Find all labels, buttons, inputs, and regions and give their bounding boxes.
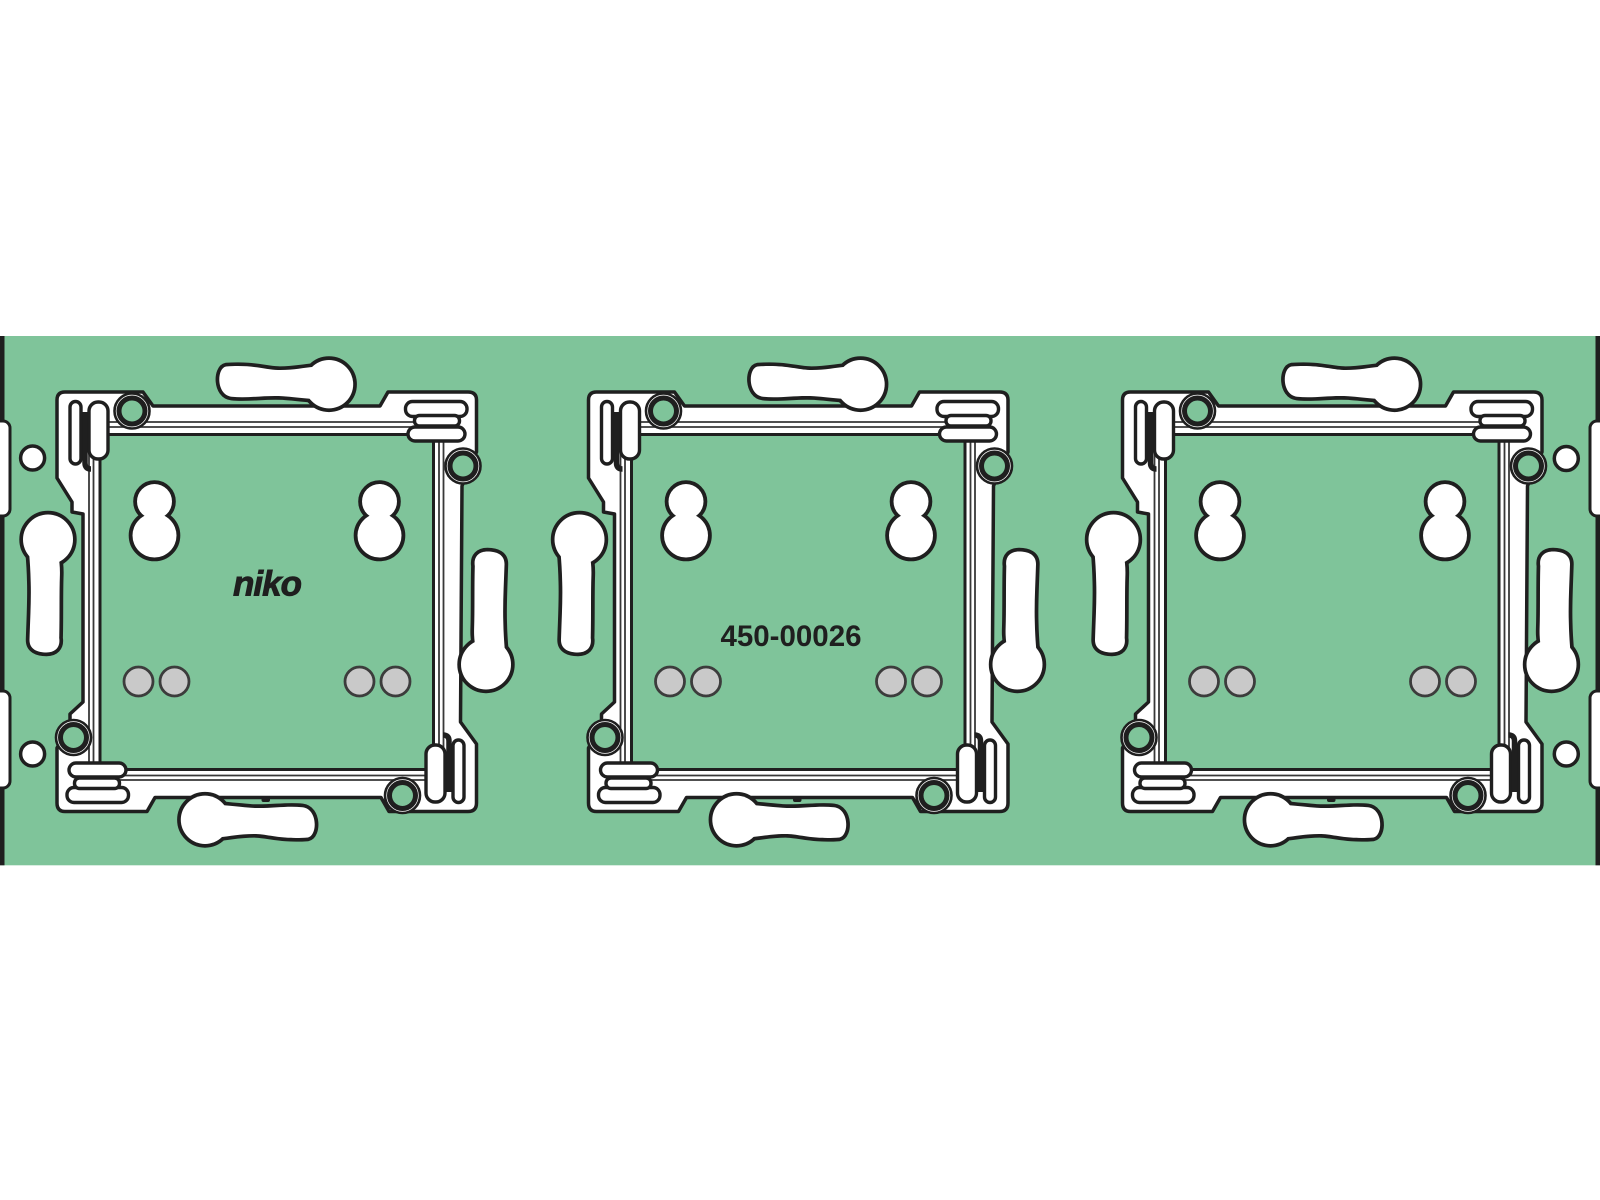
svg-text:niko: niko xyxy=(233,565,302,604)
svg-text:450-00026: 450-00026 xyxy=(720,620,861,653)
